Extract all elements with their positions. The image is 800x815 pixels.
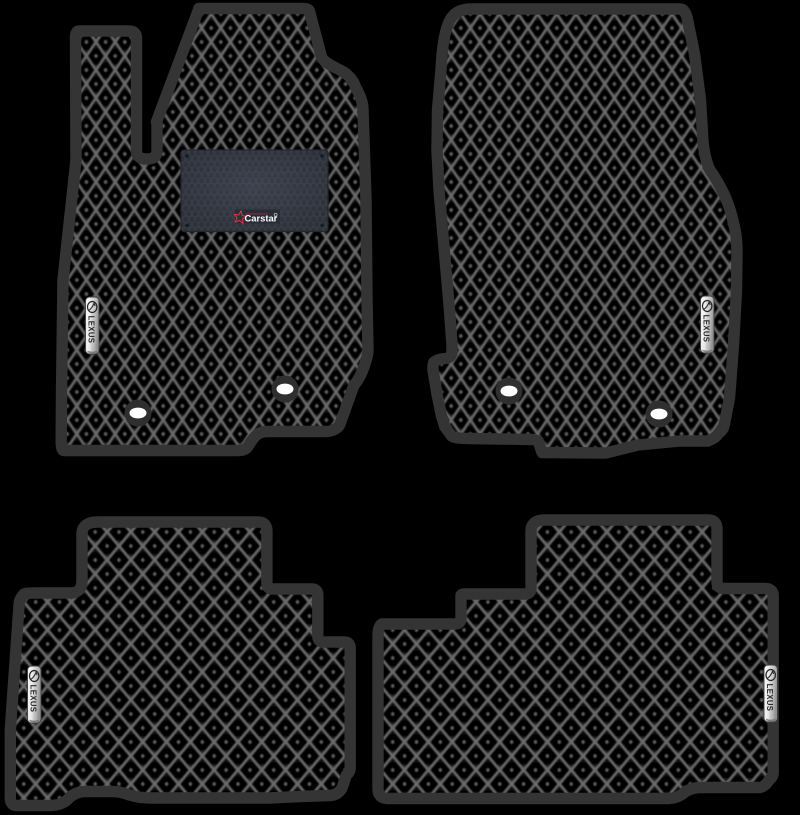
svg-text:Carstar: Carstar	[245, 212, 278, 223]
